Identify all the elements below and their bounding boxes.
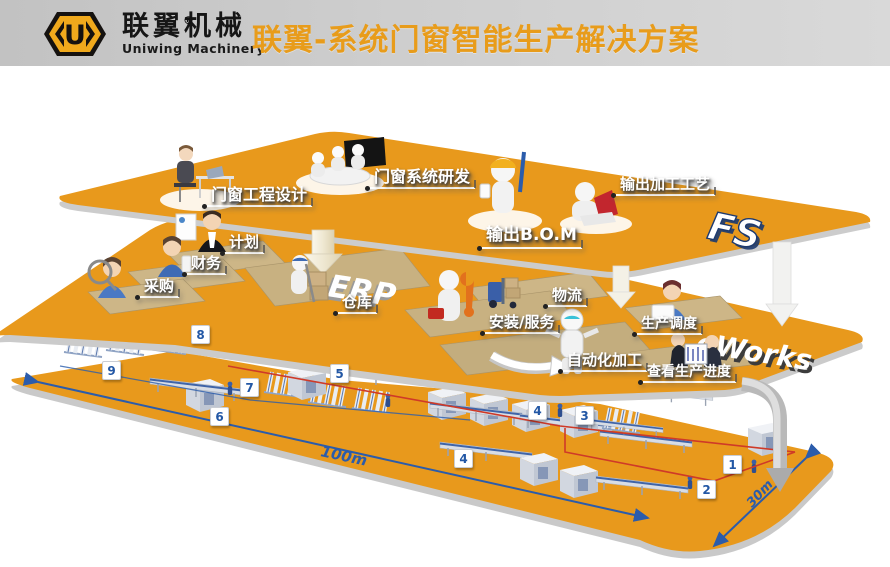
label-output-process-craft: 输出加工工艺 (616, 176, 715, 196)
poster-title: 联翼-系统门窗智能生产解决方案 (252, 15, 752, 59)
station-tag-2: 2 (697, 480, 716, 499)
station-tag-9: 9 (102, 361, 121, 380)
header-bar: U ® 联翼机械 Uniwing Machinery 联翼-系统门窗智能生产解决… (0, 0, 890, 66)
label-logistics: 物流 (548, 287, 587, 307)
label-output-bom: 输出B.O.M (482, 226, 582, 249)
label-warehouse: 仓库 (338, 294, 377, 314)
registered-trademark: ® (183, 14, 194, 27)
label-view-production-progress: 查看生产进度 (643, 364, 736, 383)
label-finance: 财务 (187, 255, 226, 275)
label-install-service: 安装/服务 (485, 314, 559, 334)
label-production-scheduling: 生产调度 (637, 316, 702, 335)
uniwing-logo: U (38, 8, 112, 60)
company-name-en: Uniwing Machinery (122, 43, 265, 56)
label-automated-processing: 自动化加工 (563, 352, 647, 372)
uniwing-solution-poster: { "header": { "company_zh": "联翼机械", "com… (0, 0, 890, 567)
station-tag-3: 3 (575, 406, 594, 425)
station-tag-4a: 4 (528, 401, 547, 420)
station-tag-8: 8 (191, 325, 210, 344)
station-tag-7: 7 (240, 378, 259, 397)
label-purchasing: 采购 (140, 278, 179, 298)
label-window-engineering-design: 门窗工程设计 (207, 186, 312, 207)
label-planning: 计划 (225, 234, 264, 254)
station-tag-5: 5 (330, 364, 349, 383)
station-tag-6: 6 (210, 407, 229, 426)
svg-text:U: U (64, 20, 86, 51)
company-brand: U ® 联翼机械 Uniwing Machinery (38, 8, 265, 60)
isometric-scene: 100m 30m FS FS ERP ERP e (0, 0, 890, 567)
forklift-figure (488, 278, 520, 308)
label-window-system-rnd: 门窗系统研发 (370, 168, 475, 189)
station-tag-4b: 4 (454, 449, 473, 468)
station-tag-1: 1 (723, 455, 742, 474)
